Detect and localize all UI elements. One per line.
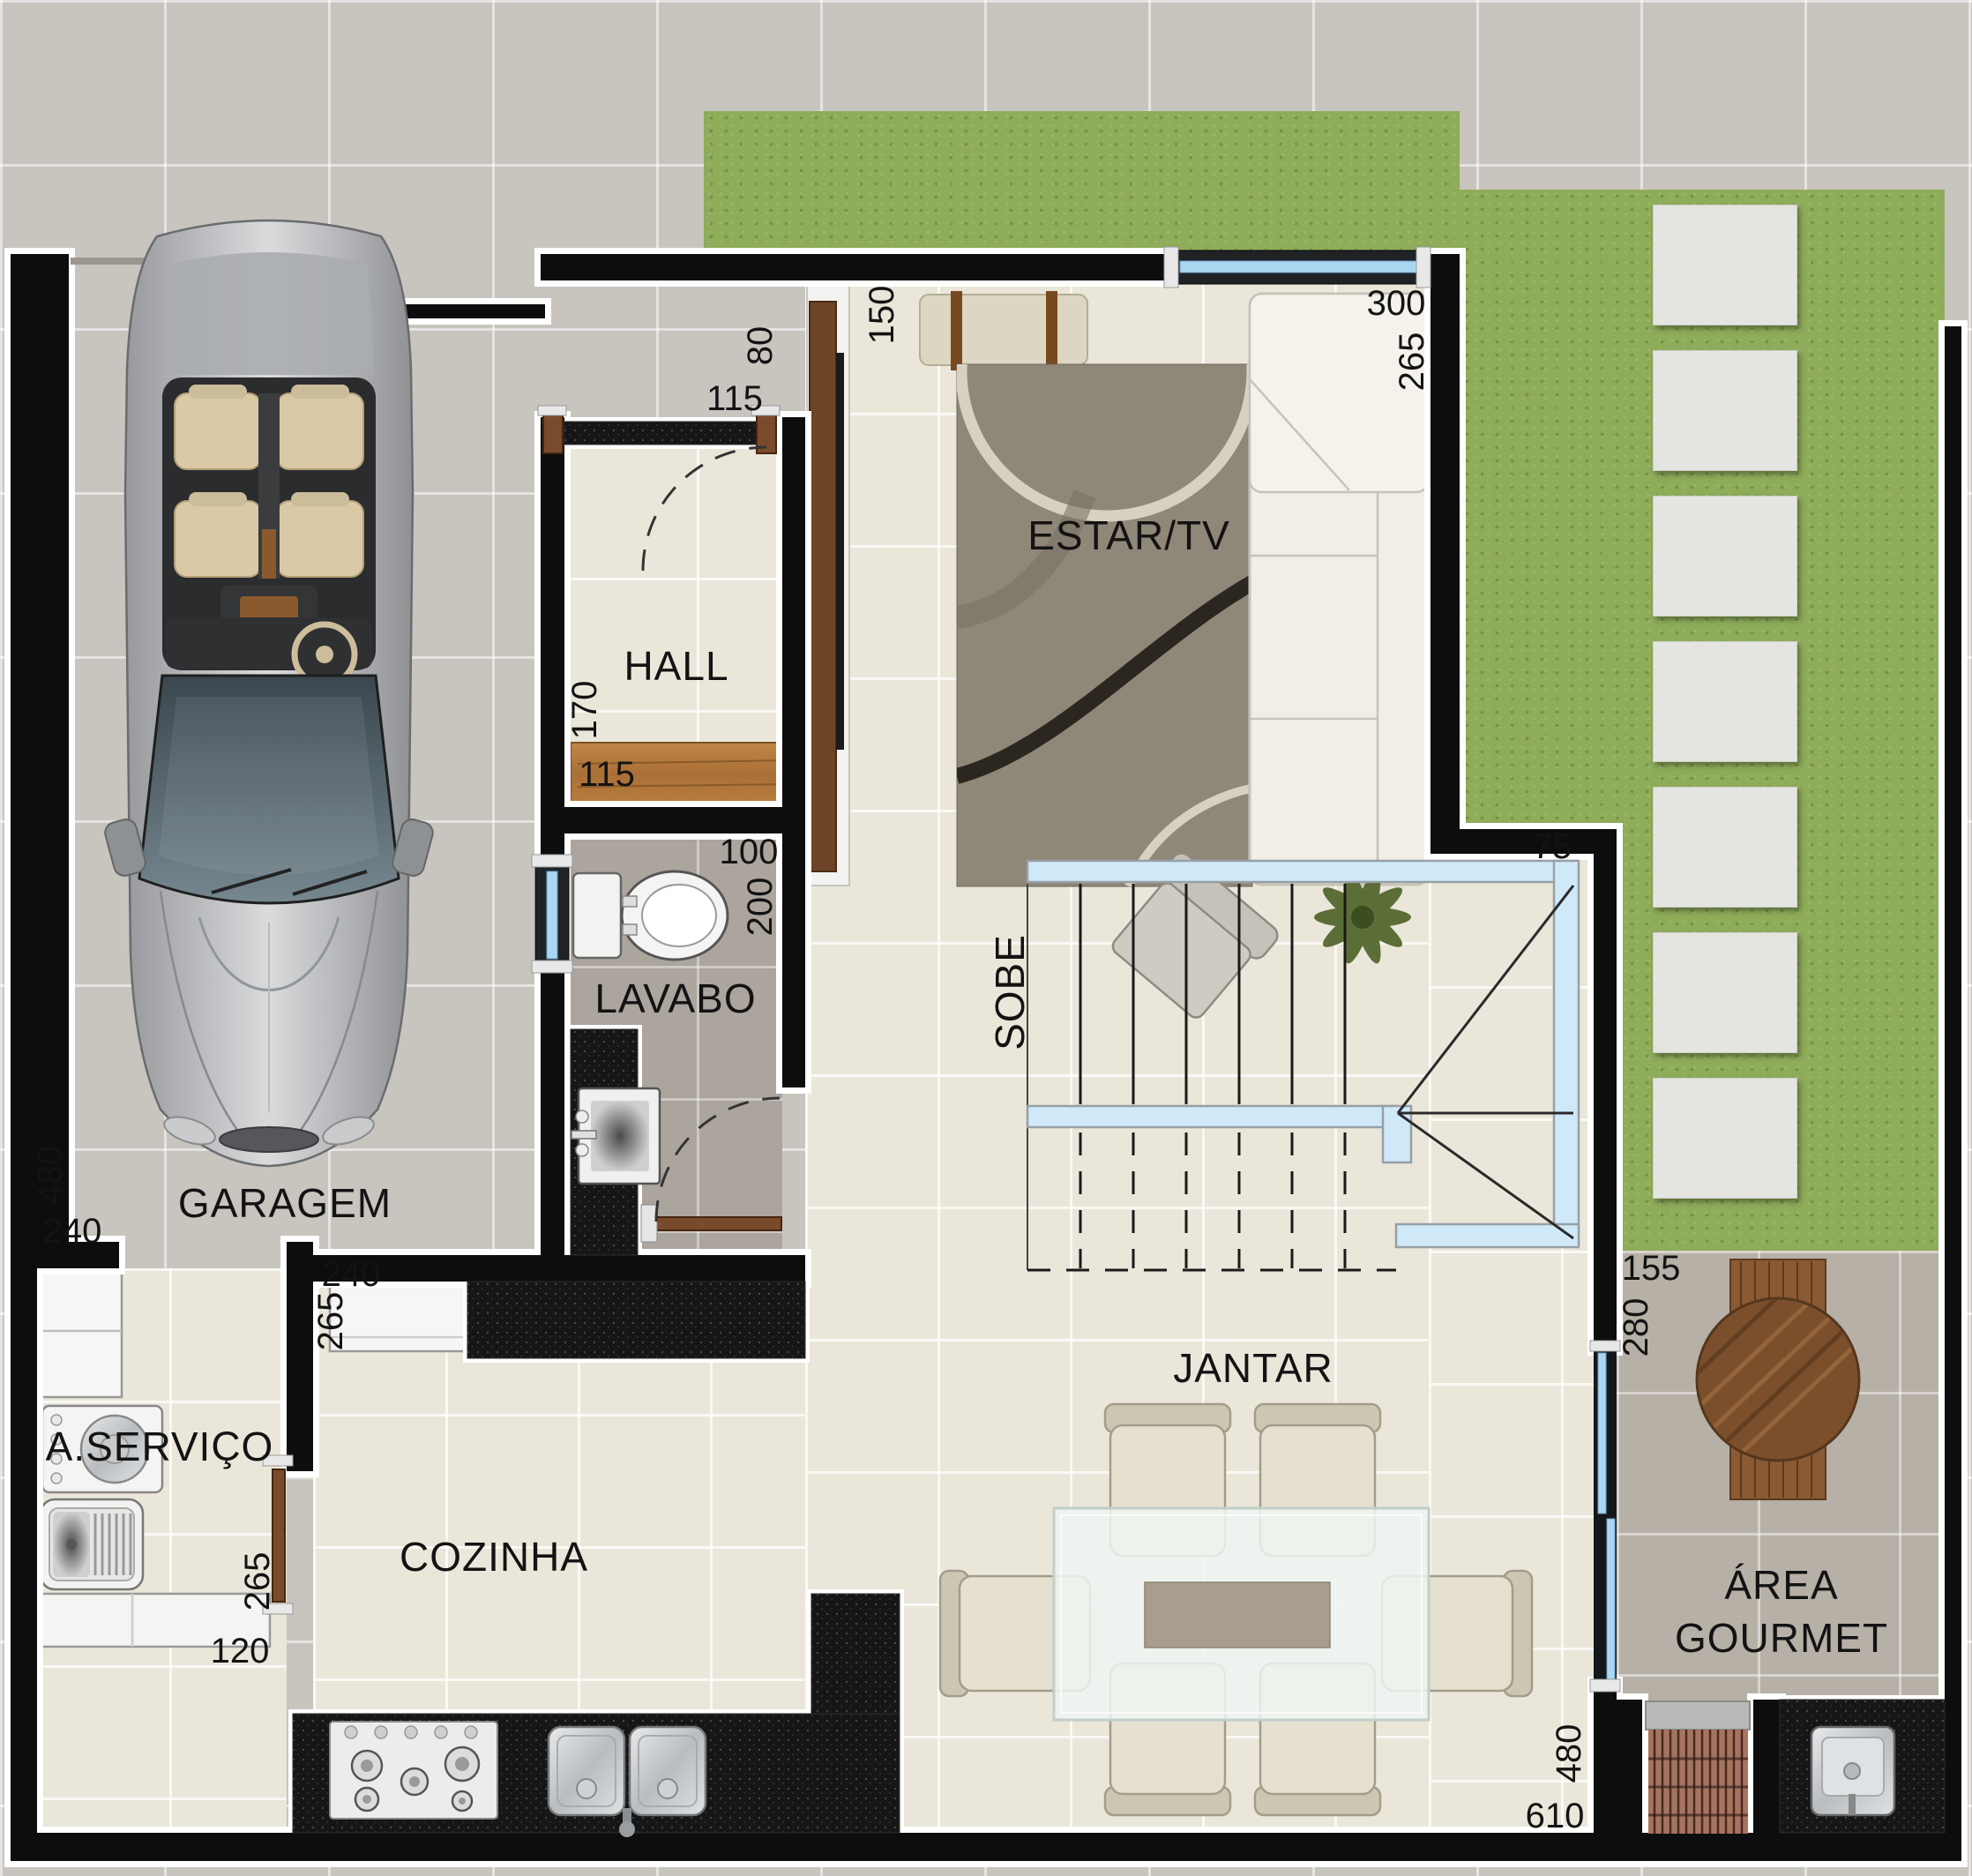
- label-servico: A.SERVIÇO: [46, 1426, 274, 1467]
- dim-entry-115: 115: [706, 381, 763, 416]
- dim-jantar-610: 610: [1526, 1798, 1585, 1834]
- gourmet-sink: [1811, 1727, 1894, 1815]
- ottoman: [920, 291, 1087, 370]
- dim-garagem-480: 480: [33, 1146, 68, 1205]
- plan-graphics: [0, 0, 1972, 1876]
- table-runner: [1145, 1582, 1330, 1648]
- dim-gourmet-155: 155: [1622, 1251, 1681, 1286]
- floor-plan: GARAGEM HALL LAVABO ESTAR/TV COZINHA A.S…: [0, 0, 1972, 1876]
- dining-table: [1054, 1508, 1429, 1720]
- label-gourmet-2: GOURMET: [1675, 1618, 1888, 1658]
- dim-lavabo-100: 100: [720, 834, 779, 870]
- dim-jantar-480: 480: [1551, 1724, 1587, 1783]
- label-estar: ESTAR/TV: [1027, 515, 1230, 556]
- cooktop: [330, 1722, 497, 1819]
- dim-servico-265: 265: [240, 1552, 275, 1611]
- label-lavabo: LAVABO: [594, 978, 756, 1019]
- label-sobe: SOBE: [990, 934, 1030, 1050]
- lavabo-sink: [571, 1088, 660, 1184]
- dim-hall-115: 115: [579, 757, 635, 792]
- label-hall: HALL: [624, 646, 728, 686]
- tv-screen: [836, 353, 844, 750]
- label-cozinha: COZINHA: [400, 1536, 588, 1577]
- tv-panel: [810, 302, 836, 871]
- dim-cozinha-265: 265: [313, 1292, 348, 1351]
- label-jantar: JANTAR: [1173, 1348, 1333, 1388]
- laundry-sink: [41, 1499, 143, 1589]
- stair-glass-railing: [1027, 861, 1579, 1247]
- dim-hall-170: 170: [567, 681, 602, 740]
- dim-stair-75: 75: [1533, 829, 1572, 864]
- dim-estar-150: 150: [864, 286, 900, 345]
- dim-cozinha-240: 240: [322, 1257, 381, 1292]
- dim-gourmet-280: 280: [1618, 1298, 1654, 1357]
- barbecue-grill: [1646, 1701, 1750, 1834]
- living-window: [1164, 247, 1430, 288]
- label-gourmet-1: ÁREA: [1724, 1565, 1838, 1605]
- car: [103, 220, 436, 1166]
- entry-door-jamb: [543, 415, 563, 453]
- label-garagem: GARAGEM: [178, 1183, 392, 1223]
- dim-servico-120: 120: [211, 1633, 270, 1669]
- dim-estar-265: 265: [1394, 333, 1430, 392]
- dim-entry-80: 80: [743, 326, 778, 366]
- lavabo-window: [532, 855, 572, 973]
- dim-estar-300: 300: [1367, 286, 1426, 321]
- dim-lavabo-200: 200: [743, 878, 778, 937]
- stair-winder-lines: [1398, 886, 1573, 1238]
- toilet: [573, 871, 728, 960]
- lavabo-door-leaf: [655, 1217, 781, 1230]
- lavabo-door-swing: [656, 1098, 780, 1222]
- gourmet-sliding-door: [1590, 1341, 1620, 1692]
- dim-garagem-240: 240: [43, 1214, 102, 1249]
- entry-door-swing: [643, 447, 766, 571]
